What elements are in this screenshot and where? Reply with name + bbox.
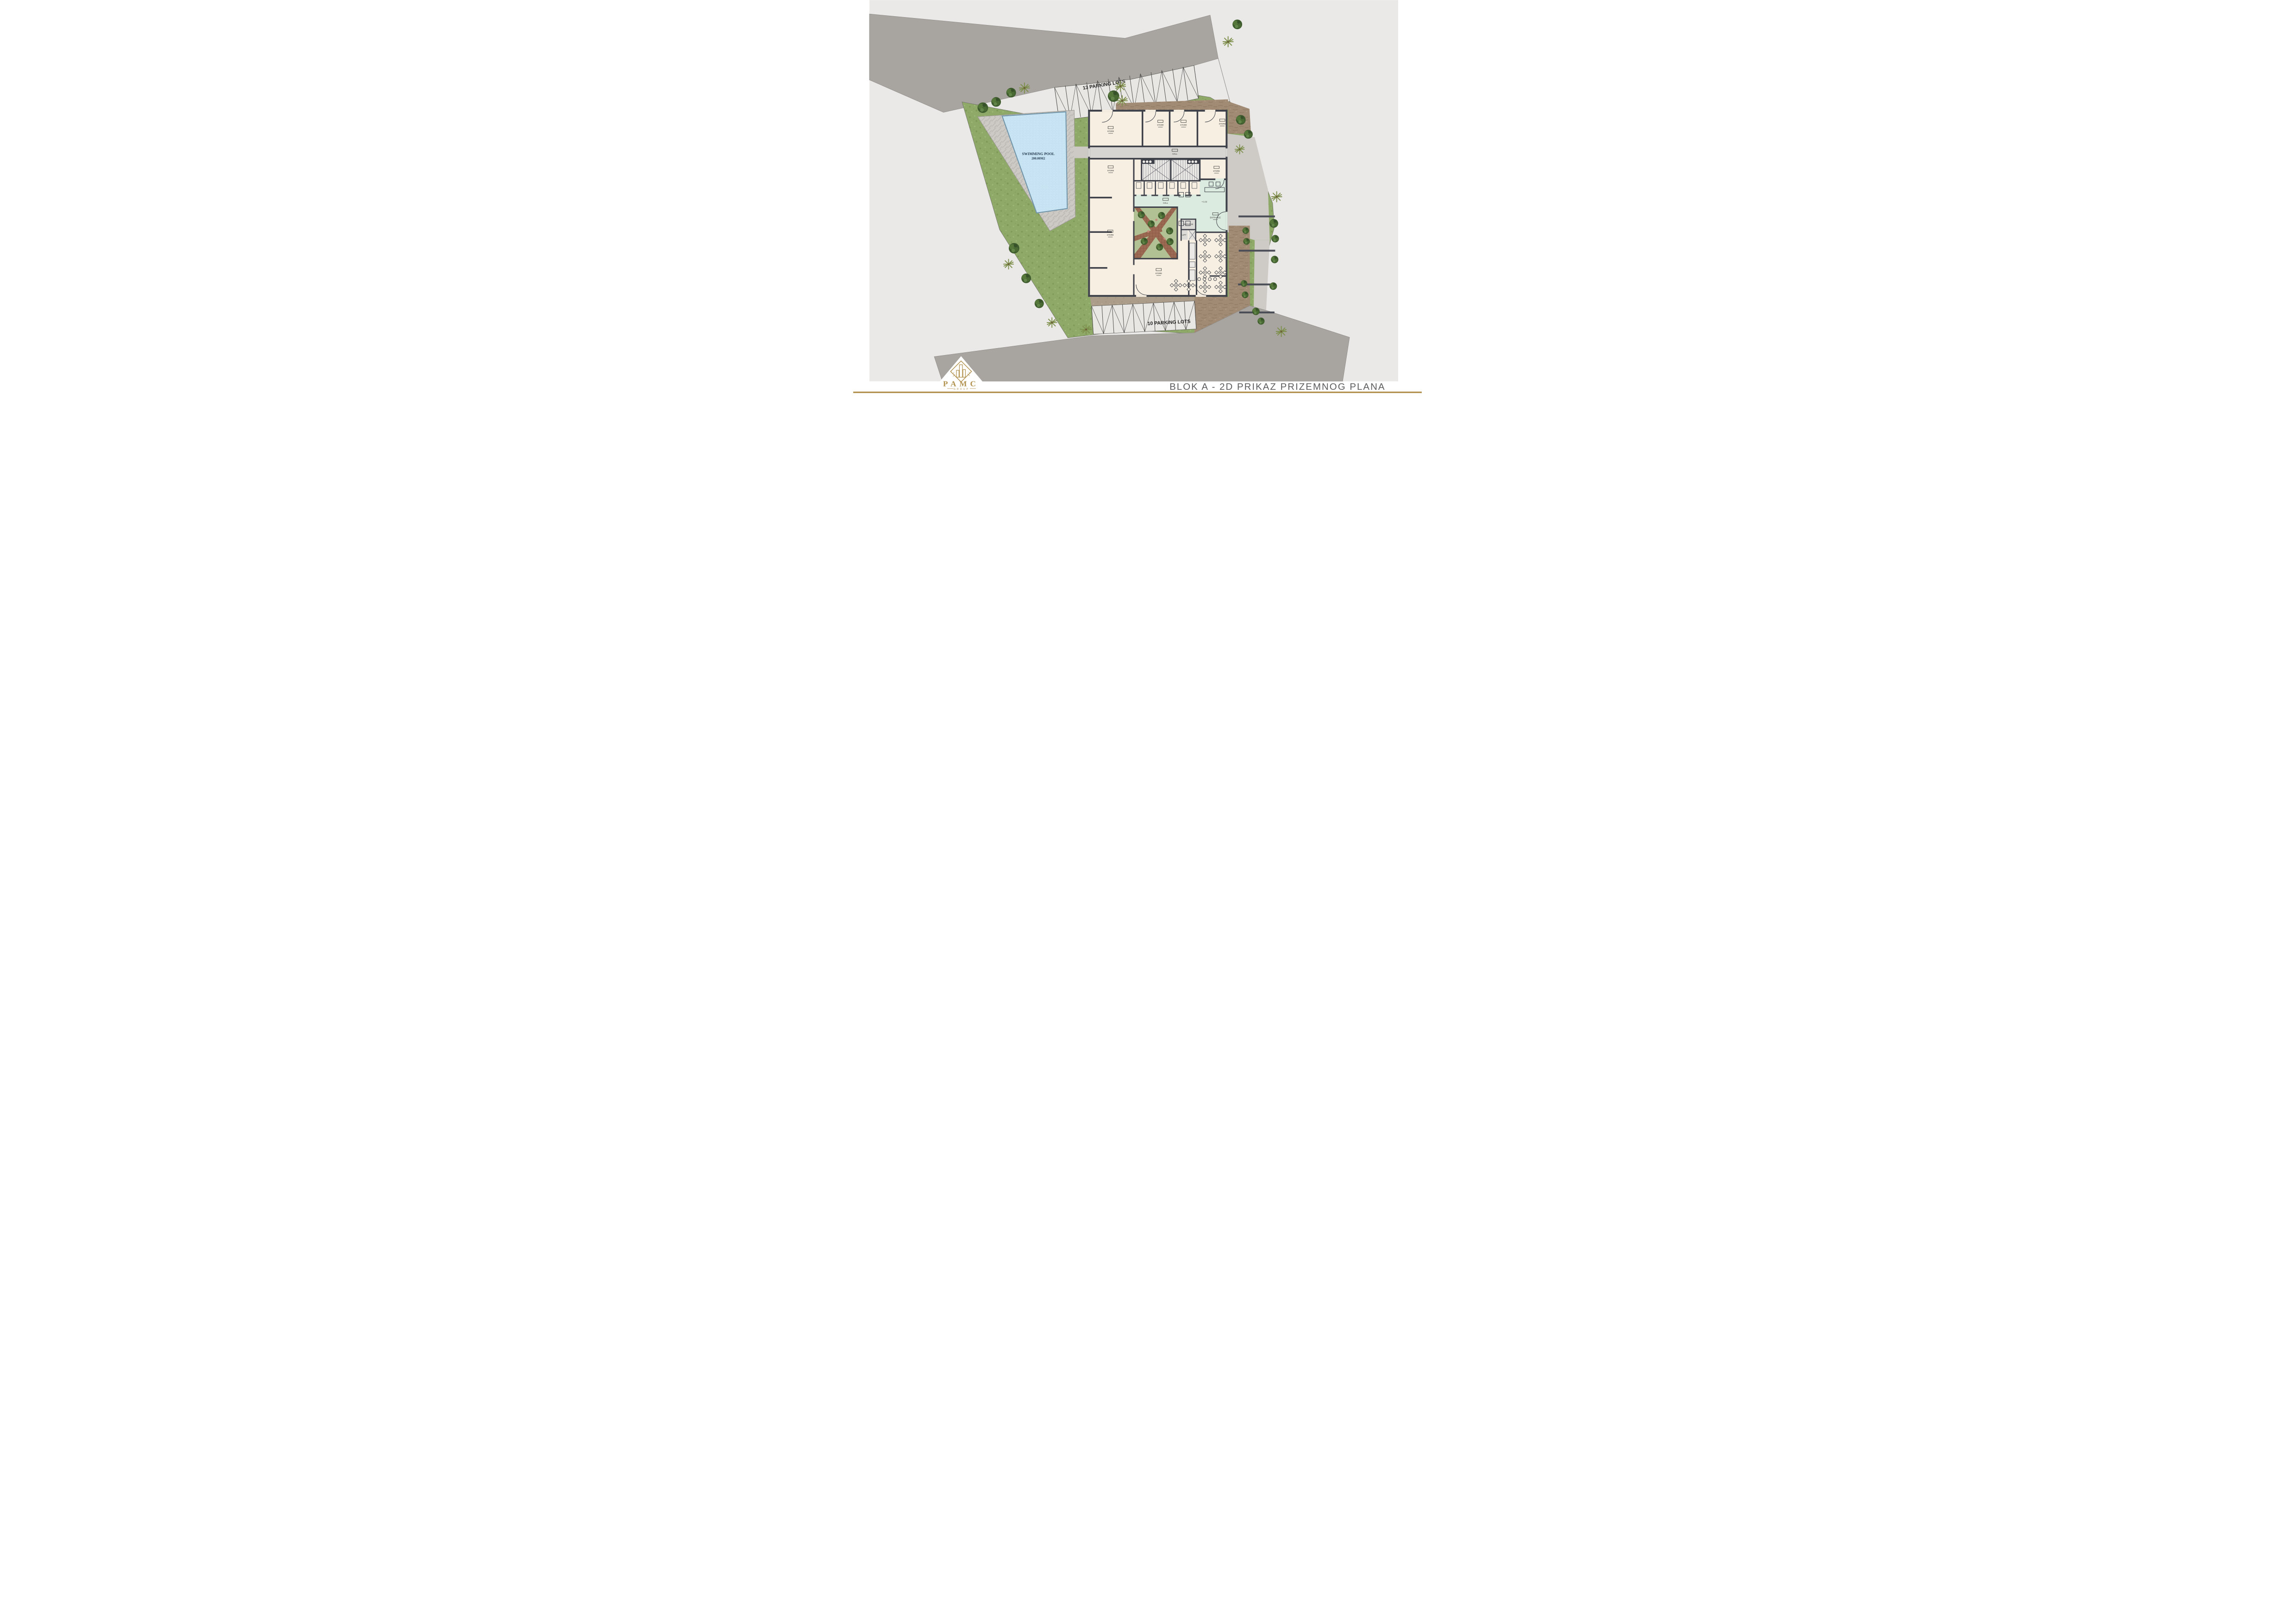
plan-title: BLOK A - 2D PRIKAZ PRIZEMNOG PLANA xyxy=(1169,381,1385,392)
kitchen-strip xyxy=(1189,243,1195,281)
svg-text:STORE: STORE xyxy=(1107,169,1114,172)
svg-text:STORE: STORE xyxy=(1213,170,1220,172)
svg-text:ENTRANCE: ENTRANCE xyxy=(1210,216,1221,219)
courtyard xyxy=(1134,207,1177,259)
level-mark: +0.00 xyxy=(1201,201,1207,204)
pool-path-connector xyxy=(1074,147,1088,158)
parking-lots-bottom: 10 PARKING LOTS xyxy=(1092,301,1196,334)
lift-label: LIFT xyxy=(1182,234,1186,236)
logo-name: PAMC xyxy=(943,379,979,388)
courtyard-tree xyxy=(1166,227,1173,234)
svg-text:STORE: STORE xyxy=(1157,124,1164,126)
logo-subtitle: GROUP xyxy=(954,388,969,391)
svg-text:STORE: STORE xyxy=(1155,272,1162,275)
courtyard-tree xyxy=(1148,220,1155,227)
courtyard-tree xyxy=(1138,211,1145,218)
svg-text:STORE: STORE xyxy=(1107,130,1114,132)
site-plan-page: 13 PARKING LOTS 10 PARKING LOTS SWIMMING… xyxy=(853,0,1422,406)
courtyard-tree xyxy=(1156,244,1163,250)
pool-area-label: 200.00M2 xyxy=(1031,157,1045,161)
courtyard-tree xyxy=(1158,212,1165,219)
svg-text:STORE: STORE xyxy=(1219,123,1226,125)
courtyard-tree xyxy=(1141,238,1148,245)
site-plan-drawing: 13 PARKING LOTS 10 PARKING LOTS SWIMMING… xyxy=(853,0,1422,406)
corridor-hall xyxy=(1088,147,1227,158)
svg-text:HALL: HALL xyxy=(1163,202,1168,204)
pool-label: SWIMMING POOL xyxy=(1022,152,1055,156)
svg-text:STORE: STORE xyxy=(1107,234,1114,236)
courtyard-tree xyxy=(1167,238,1174,245)
building-blok-a: SERVICE LIFT xyxy=(1088,110,1227,297)
svg-text:STORE: STORE xyxy=(1180,124,1187,126)
svg-text:HALL: HALL xyxy=(1172,153,1177,155)
